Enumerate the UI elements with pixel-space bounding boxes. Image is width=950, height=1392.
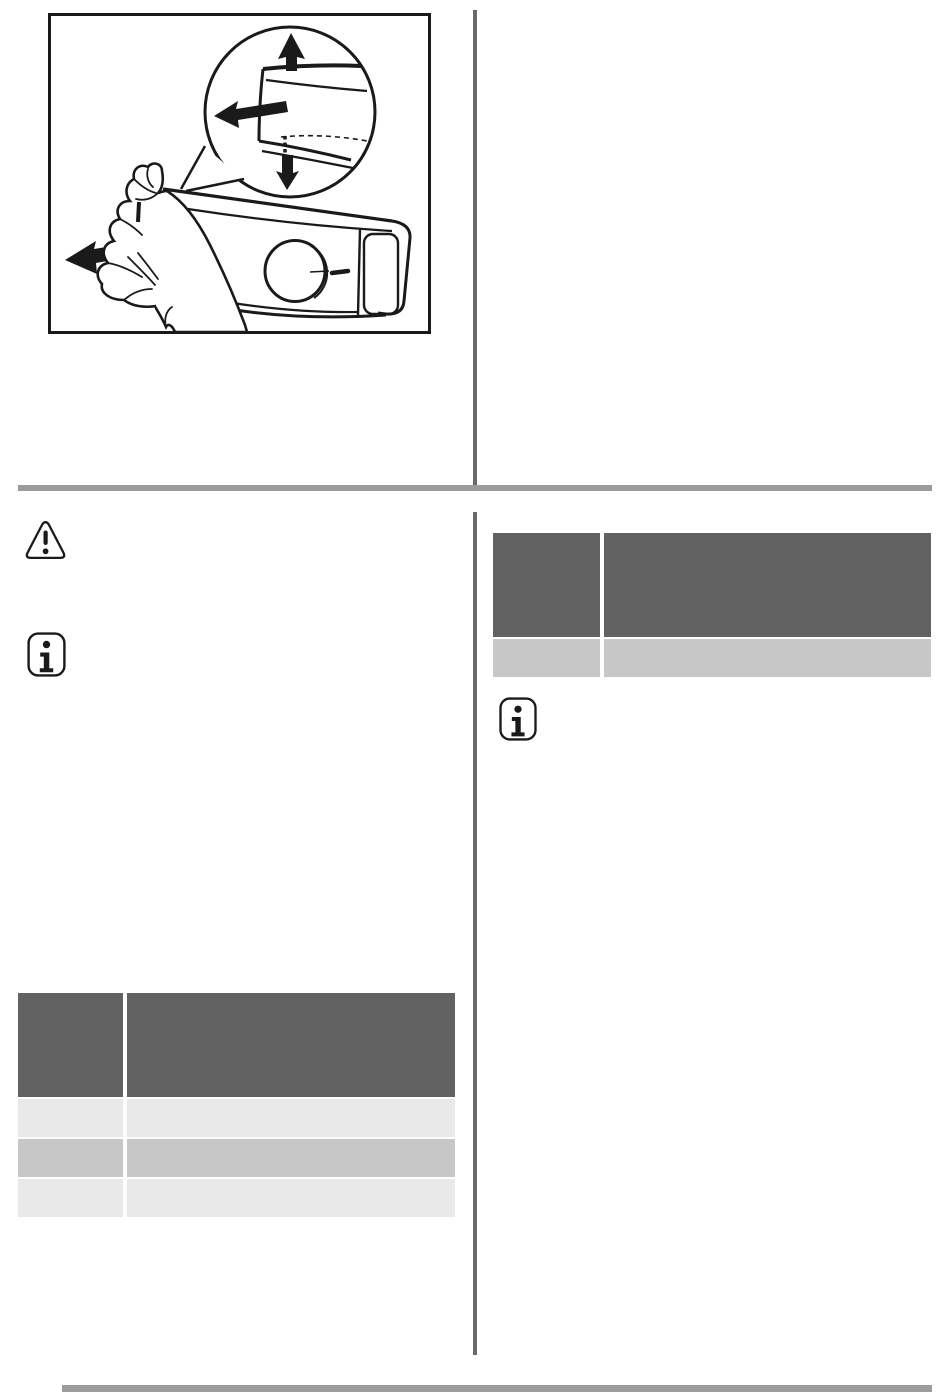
warning-triangle-icon: [23, 517, 68, 568]
table-left: [18, 993, 455, 1217]
table-right-header-col1: [493, 533, 600, 637]
table-left-row2-col1: [18, 1139, 123, 1177]
table-right: [493, 533, 930, 677]
table-left-row1-col1: [18, 1099, 123, 1137]
section-separator-bar: [18, 485, 932, 491]
footer-bar: [62, 1385, 932, 1392]
manual-page: [0, 0, 950, 1392]
illustration-drawer-removal: [48, 13, 431, 334]
column-divider-bottom: [473, 512, 477, 1355]
table-left-row3-col1: [18, 1179, 123, 1217]
column-divider-top: [473, 10, 477, 485]
table-left-row2-col2: [127, 1139, 455, 1177]
table-left-row3-col2: [127, 1179, 455, 1217]
table-left-row1-col2: [127, 1099, 455, 1137]
table-left-header-col2: [127, 993, 455, 1097]
table-right-row1-col2: [604, 639, 931, 677]
panel-edge-peek: [138, 202, 139, 222]
table-right-header-col2: [604, 533, 931, 637]
info-icon: [27, 632, 66, 682]
table-left-header-col1: [18, 993, 123, 1097]
drawer-removal-figure: [48, 13, 431, 334]
table-right-row1-col1: [493, 639, 600, 677]
info-icon: [498, 697, 538, 746]
